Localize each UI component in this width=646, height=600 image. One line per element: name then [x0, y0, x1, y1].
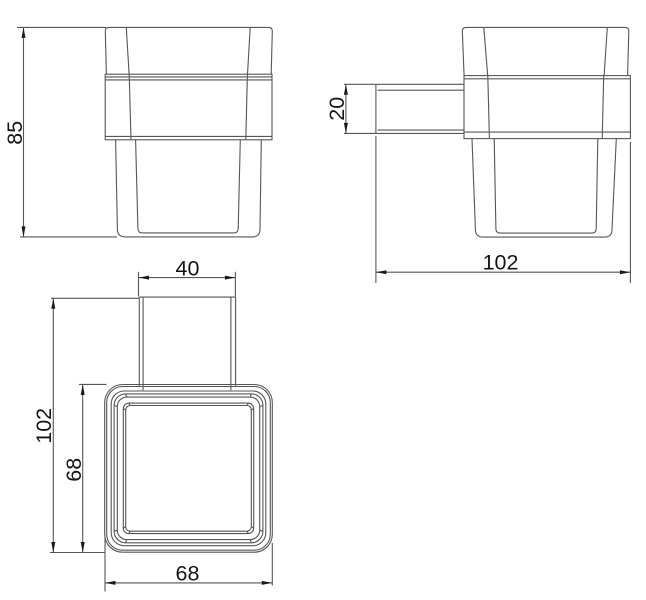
svg-text:102: 102	[32, 408, 56, 444]
svg-text:40: 40	[176, 256, 200, 280]
svg-text:68: 68	[176, 562, 200, 586]
svg-text:102: 102	[483, 251, 519, 275]
svg-text:20: 20	[325, 97, 349, 121]
svg-text:85: 85	[3, 121, 27, 145]
svg-text:68: 68	[62, 458, 86, 482]
